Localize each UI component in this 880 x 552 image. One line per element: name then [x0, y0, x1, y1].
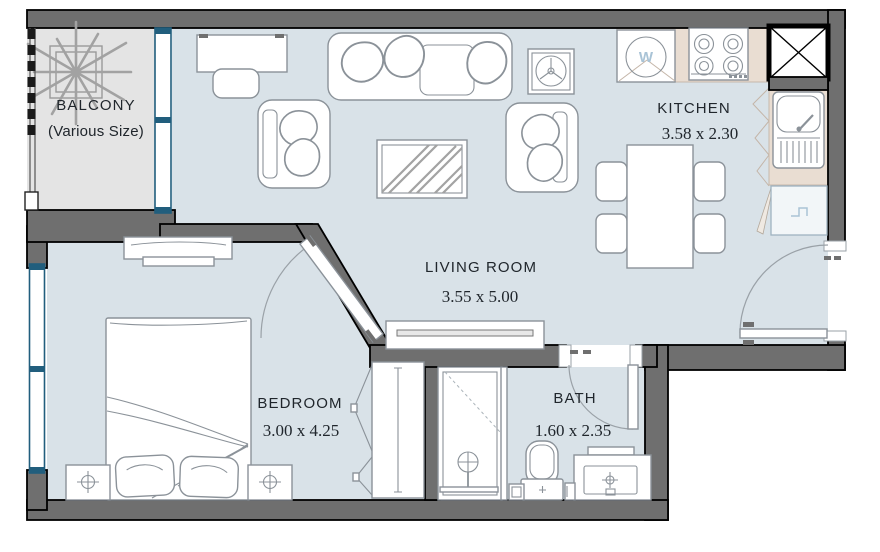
duct-shaft: [769, 26, 828, 90]
bath-label: BATH: [553, 390, 596, 407]
sofa: [328, 33, 513, 100]
desk-chair: [213, 69, 259, 98]
dining-chair: [694, 214, 725, 253]
wall-band-south-living: [645, 345, 845, 370]
bed: [106, 318, 251, 500]
kitchen-label: KITCHEN: [657, 100, 731, 117]
bedroom-label: BEDROOM: [257, 395, 342, 412]
door-leaf: [740, 329, 827, 338]
washer-glyph: W: [639, 49, 654, 66]
pillow: [179, 456, 238, 498]
wall-right-upper: [828, 10, 845, 250]
wall-left-lower: [27, 470, 47, 510]
armchair-right: [506, 103, 578, 192]
armchair-left: [258, 100, 330, 188]
floor-plan: W: [0, 0, 880, 552]
kitchen-dimensions: 3.58 x 2.30: [662, 124, 739, 143]
pillow: [115, 455, 175, 498]
tv-icon: [397, 330, 533, 336]
bath-dimensions: 1.60 x 2.35: [535, 421, 612, 440]
shower-glass: [501, 367, 507, 500]
dining-chair: [596, 162, 627, 201]
bedroom-dimensions: 3.00 x 4.25: [263, 421, 340, 440]
washer-icon: W: [617, 30, 675, 82]
wall-bottom: [27, 500, 668, 520]
shower: [438, 367, 507, 500]
floor-plan-page: W: [0, 0, 880, 552]
stove-icon: [689, 28, 748, 80]
balcony-sublabel: (Various Size): [48, 123, 144, 140]
living-room-label: LIVING ROOM: [425, 259, 537, 276]
toilet-icon: [521, 441, 563, 500]
tv-console: [386, 321, 544, 349]
balcony-sliding-door: [155, 28, 171, 213]
door-leaf: [628, 365, 638, 429]
dining-chair: [596, 214, 627, 253]
dining-chair: [694, 162, 725, 201]
living-room-dimensions: 3.55 x 5.00: [442, 287, 519, 306]
side-table: [528, 49, 574, 94]
wall-top: [27, 10, 845, 28]
nightstand-right: [248, 465, 292, 500]
kitchen-sink-icon: [773, 92, 824, 168]
balcony-label: BALCONY: [56, 97, 135, 114]
vanity-sink-icon: [574, 447, 651, 500]
bedroom-window: [30, 264, 45, 473]
nightstand-left: [66, 465, 110, 500]
dining-table: [627, 145, 693, 268]
